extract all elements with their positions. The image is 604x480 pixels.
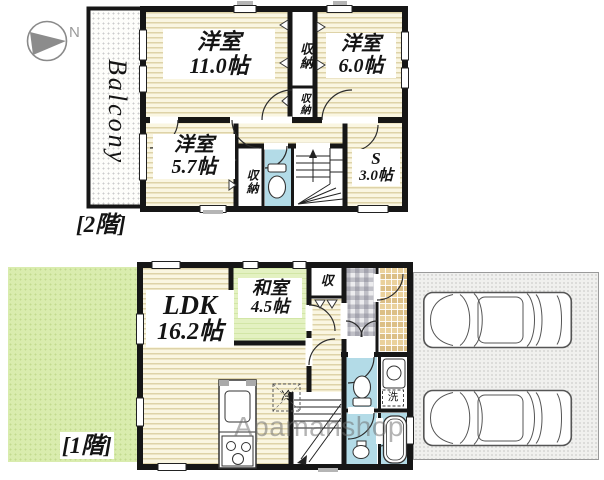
room-washitsu-label: 和室 4.5帖 [238,278,302,318]
room-yoshitsu-11-label: 洋室 11.0帖 [163,29,275,79]
floorplan-canvas: N Balcony 洋室 11.0帖 洋室 6.0帖 洋室 5.7帖 S 3.0… [0,0,604,480]
room-size: 5.7帖 [155,157,233,179]
washbasin-icon [353,441,369,459]
compass-north-label: N [69,25,80,41]
stairs-2f-icon [296,148,343,204]
room-size: 16.2帖 [148,320,232,346]
room-size: 3.0帖 [354,168,398,184]
balcony-label: Balcony [99,28,131,196]
floor2-label: [2階] [76,213,126,238]
floor1-label-text: [1階] [60,432,114,459]
room-size: 11.0帖 [165,54,273,78]
room-size: 4.5帖 [240,298,300,316]
floor1-label: [1階] [60,434,114,459]
room-name: 和室 [240,279,300,298]
closet-1f-label: 収 [317,274,337,288]
closet-small-label: 収納 [296,91,310,117]
room-size: 6.0帖 [328,56,394,78]
toilet-2f-icon [268,164,286,198]
refrigerator-label: 冷 [276,390,298,403]
room-name: S [354,150,398,168]
closet-57-label: 収納 [243,160,258,204]
room-service-label: S 3.0帖 [352,149,400,186]
toilet-1f-icon [353,376,371,406]
watermark: Apamanshop [234,411,384,443]
car-icon [424,293,572,348]
room-ldk-label: LDK 16.2帖 [146,290,234,347]
room-name: 洋室 [155,135,233,157]
room-name: 洋室 [328,34,394,56]
room-yoshitsu-6-label: 洋室 6.0帖 [326,33,396,78]
compass-icon [28,22,67,61]
room-name: LDK [148,291,232,320]
closet-tall-label: 収納 [294,30,312,82]
car-icon [424,391,572,446]
room-name: 洋室 [165,30,273,54]
laundry-label: 洗 [384,392,402,403]
room-yoshitsu-57-label: 洋室 5.7帖 [153,134,235,179]
